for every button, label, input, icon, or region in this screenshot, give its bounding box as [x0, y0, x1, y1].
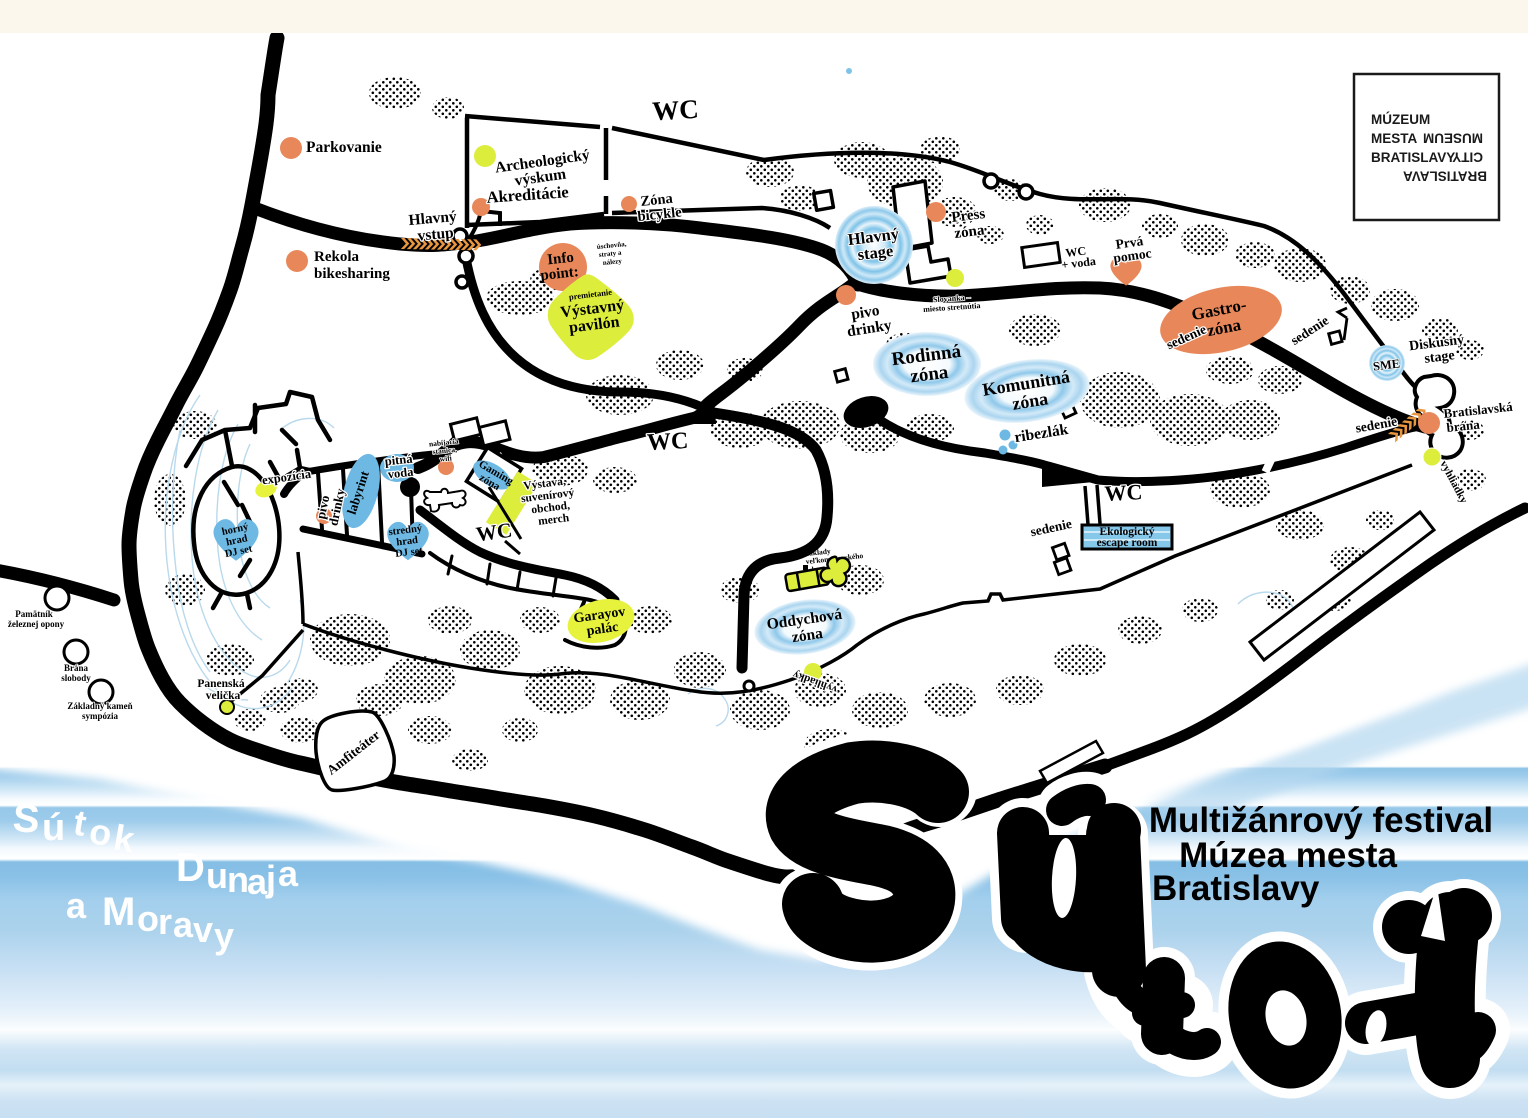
- svg-text:MÚZEUM: MÚZEUM: [1371, 112, 1430, 127]
- svg-text:slobody: slobody: [61, 673, 91, 683]
- svg-text:sympózia: sympózia: [82, 711, 119, 721]
- svg-text:j: j: [265, 858, 276, 899]
- svg-text:a: a: [66, 885, 87, 926]
- svg-text:WC: WC: [651, 94, 699, 126]
- svg-text:escape room: escape room: [1097, 537, 1158, 549]
- svg-text:bikesharing: bikesharing: [314, 266, 390, 282]
- svg-text:MESTA: MESTA: [1371, 131, 1417, 146]
- svg-text:u: u: [206, 855, 228, 896]
- svg-text:Základný kameň: Základný kameň: [67, 701, 132, 711]
- svg-text:ú: ú: [42, 807, 65, 849]
- svg-text:WC: WC: [474, 518, 513, 547]
- svg-text:Pamätník: Pamätník: [15, 609, 53, 619]
- svg-text:r: r: [158, 901, 172, 942]
- svg-text:a: a: [173, 904, 194, 945]
- svg-text:WC: WC: [1104, 479, 1143, 506]
- svg-text:BRATISLAVY: BRATISLAVY: [1371, 150, 1455, 165]
- svg-text:CITY: CITY: [1452, 150, 1483, 165]
- svg-text:D: D: [176, 846, 205, 890]
- svg-text:velička: velička: [206, 690, 241, 702]
- svg-text:S: S: [11, 796, 41, 842]
- svg-text:Brána: Brána: [64, 663, 89, 673]
- svg-text:v: v: [193, 909, 213, 950]
- svg-text:a: a: [278, 853, 299, 894]
- svg-text:Parkovanie: Parkovanie: [306, 139, 382, 156]
- svg-text:o: o: [137, 898, 159, 939]
- svg-text:voda: voda: [387, 465, 415, 482]
- svg-text:Bratislavy: Bratislavy: [1152, 869, 1320, 908]
- svg-text:BRATISLAVA: BRATISLAVA: [1403, 169, 1487, 184]
- svg-text:n: n: [227, 859, 249, 900]
- svg-text:Multižánrový festival: Multižánrový festival: [1149, 801, 1493, 840]
- svg-text:WC: WC: [646, 428, 689, 456]
- svg-text:a: a: [247, 861, 268, 902]
- svg-text:M: M: [102, 890, 135, 934]
- svg-text:Rekola: Rekola: [314, 249, 360, 265]
- svg-text:wifi: wifi: [439, 453, 452, 463]
- svg-text:MUSEUM: MUSEUM: [1423, 131, 1483, 146]
- svg-text:vstup: vstup: [417, 224, 455, 244]
- svg-text:Panenská: Panenská: [197, 678, 245, 690]
- svg-text:y: y: [214, 915, 234, 956]
- svg-text:železnej opony: železnej opony: [8, 619, 65, 629]
